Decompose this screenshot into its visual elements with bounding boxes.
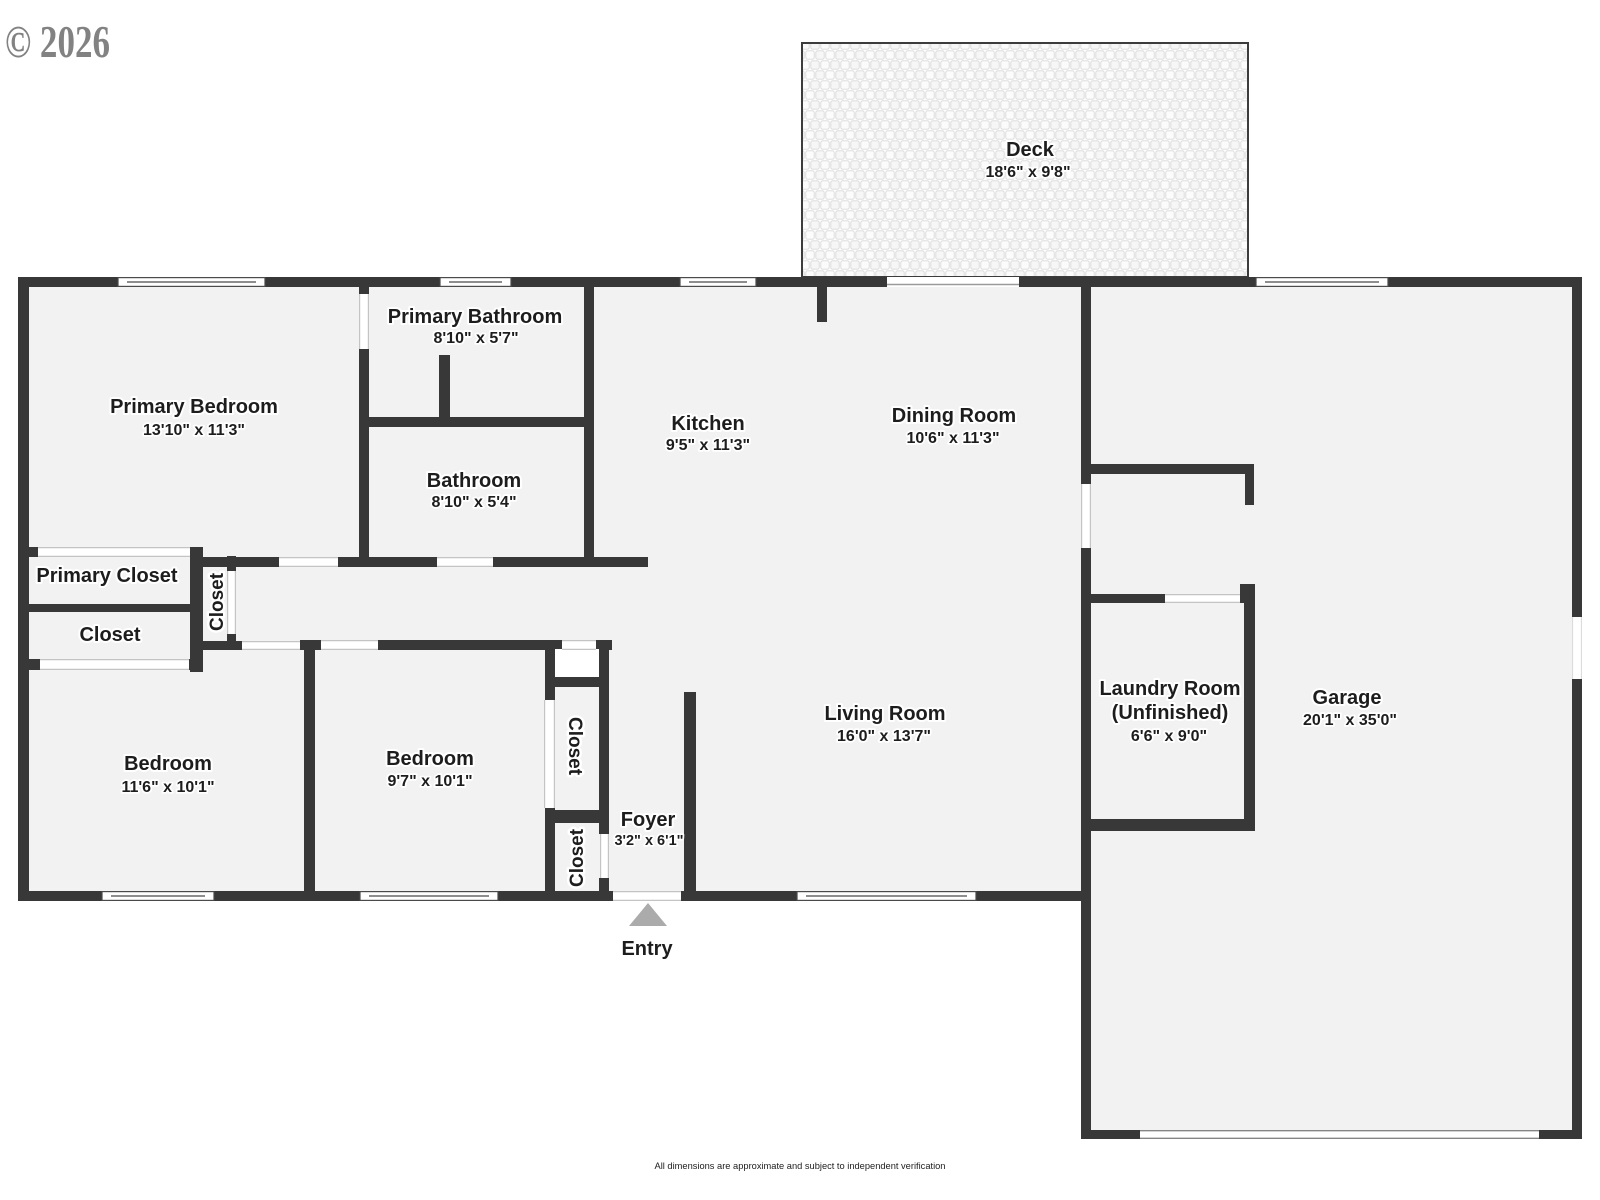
svg-text:13'10" x 11'3": 13'10" x 11'3" bbox=[143, 422, 245, 439]
svg-text:Bedroom: Bedroom bbox=[124, 753, 212, 775]
svg-text:All dimensions are approximate: All dimensions are approximate and subje… bbox=[655, 1161, 946, 1171]
svg-text:Bathroom: Bathroom bbox=[427, 470, 521, 492]
svg-text:9'7" x 10'1": 9'7" x 10'1" bbox=[387, 773, 472, 790]
svg-text:Laundry Room: Laundry Room bbox=[1099, 678, 1240, 700]
svg-text:Closet: Closet bbox=[207, 572, 228, 631]
svg-text:11'6" x 10'1": 11'6" x 10'1" bbox=[121, 779, 214, 796]
svg-text:Closet: Closet bbox=[79, 624, 140, 646]
svg-text:Entry: Entry bbox=[621, 938, 673, 960]
svg-text:18'6" x 9'8": 18'6" x 9'8" bbox=[985, 164, 1070, 181]
svg-text:(Unfinished): (Unfinished) bbox=[1112, 702, 1229, 724]
svg-text:3'2" x 6'1": 3'2" x 6'1" bbox=[614, 833, 683, 849]
svg-text:6'6" x 9'0": 6'6" x 9'0" bbox=[1131, 728, 1207, 745]
svg-text:8'10" x 5'7": 8'10" x 5'7" bbox=[433, 330, 518, 347]
svg-text:Foyer: Foyer bbox=[621, 809, 676, 831]
svg-text:Primary Bathroom: Primary Bathroom bbox=[388, 306, 563, 328]
svg-text:Closet: Closet bbox=[567, 828, 588, 887]
svg-text:Closet: Closet bbox=[564, 717, 585, 776]
svg-text:Kitchen: Kitchen bbox=[671, 413, 744, 435]
svg-text:Deck: Deck bbox=[1006, 139, 1055, 161]
svg-text:10'6" x 11'3": 10'6" x 11'3" bbox=[906, 430, 999, 447]
svg-text:Garage: Garage bbox=[1313, 687, 1382, 709]
svg-text:8'10" x 5'4": 8'10" x 5'4" bbox=[431, 494, 516, 511]
svg-text:Dining Room: Dining Room bbox=[892, 405, 1016, 427]
svg-text:20'1" x 35'0": 20'1" x 35'0" bbox=[1303, 712, 1397, 729]
svg-text:9'5" x 11'3": 9'5" x 11'3" bbox=[666, 437, 750, 454]
svg-text:Primary Bedroom: Primary Bedroom bbox=[110, 396, 278, 418]
svg-text:Bedroom: Bedroom bbox=[386, 748, 474, 770]
svg-text:Living Room: Living Room bbox=[824, 703, 945, 725]
svg-text:16'0" x 13'7": 16'0" x 13'7" bbox=[837, 728, 931, 745]
svg-text:© 2026: © 2026 bbox=[5, 17, 110, 67]
svg-text:Primary Closet: Primary Closet bbox=[36, 565, 178, 587]
